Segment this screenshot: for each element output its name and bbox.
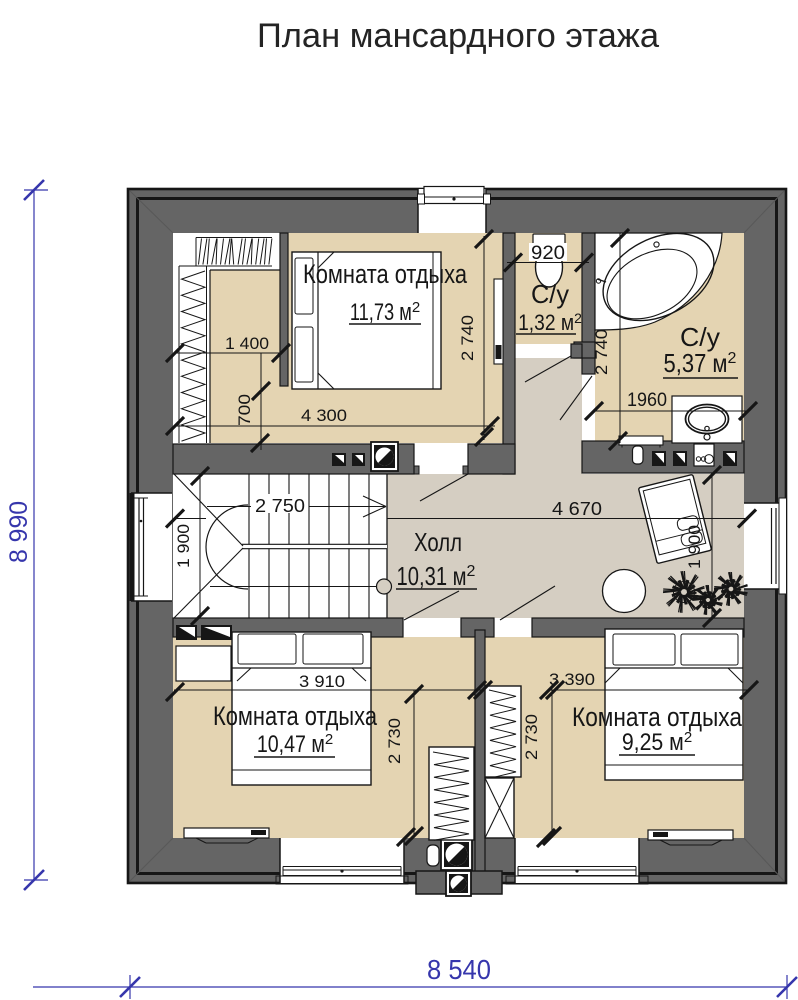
svg-text:2 750: 2 750 <box>255 496 305 516</box>
svg-text:С/у: С/у <box>531 279 569 309</box>
svg-text:2 730: 2 730 <box>522 714 541 760</box>
svg-text:1960: 1960 <box>627 390 667 411</box>
svg-text:8 990: 8 990 <box>5 501 33 563</box>
svg-text:5,37 м2: 5,37 м2 <box>664 348 737 378</box>
svg-text:1 900: 1 900 <box>685 525 704 569</box>
svg-text:9,25 м2: 9,25 м2 <box>622 729 692 756</box>
svg-text:10,31 м2: 10,31 м2 <box>397 561 476 591</box>
svg-text:4 300: 4 300 <box>301 406 347 425</box>
svg-text:10,47 м2: 10,47 м2 <box>257 731 333 758</box>
svg-text:1,32 м2: 1,32 м2 <box>518 310 582 335</box>
svg-text:План мансардного этажа: План мансардного этажа <box>257 17 659 55</box>
svg-text:2 740: 2 740 <box>592 329 611 375</box>
svg-text:4 670: 4 670 <box>552 499 602 519</box>
svg-text:2 730: 2 730 <box>385 718 404 764</box>
svg-text:Холл: Холл <box>414 527 462 557</box>
svg-text:Комната отдыха: Комната отдыха <box>213 701 378 731</box>
svg-text:700: 700 <box>235 394 254 426</box>
svg-text:920: 920 <box>531 243 565 264</box>
svg-text:8 540: 8 540 <box>427 954 491 985</box>
svg-text:Комната отдыха: Комната отдыха <box>572 702 743 732</box>
svg-text:1 400: 1 400 <box>225 334 269 353</box>
svg-text:Комната отдыха: Комната отдыха <box>303 259 468 289</box>
svg-text:11,73 м2: 11,73 м2 <box>350 299 420 326</box>
svg-text:1 900: 1 900 <box>174 524 193 568</box>
svg-text:3 910: 3 910 <box>299 672 345 691</box>
svg-text:2 740: 2 740 <box>458 315 477 361</box>
svg-text:3 390: 3 390 <box>549 670 595 689</box>
